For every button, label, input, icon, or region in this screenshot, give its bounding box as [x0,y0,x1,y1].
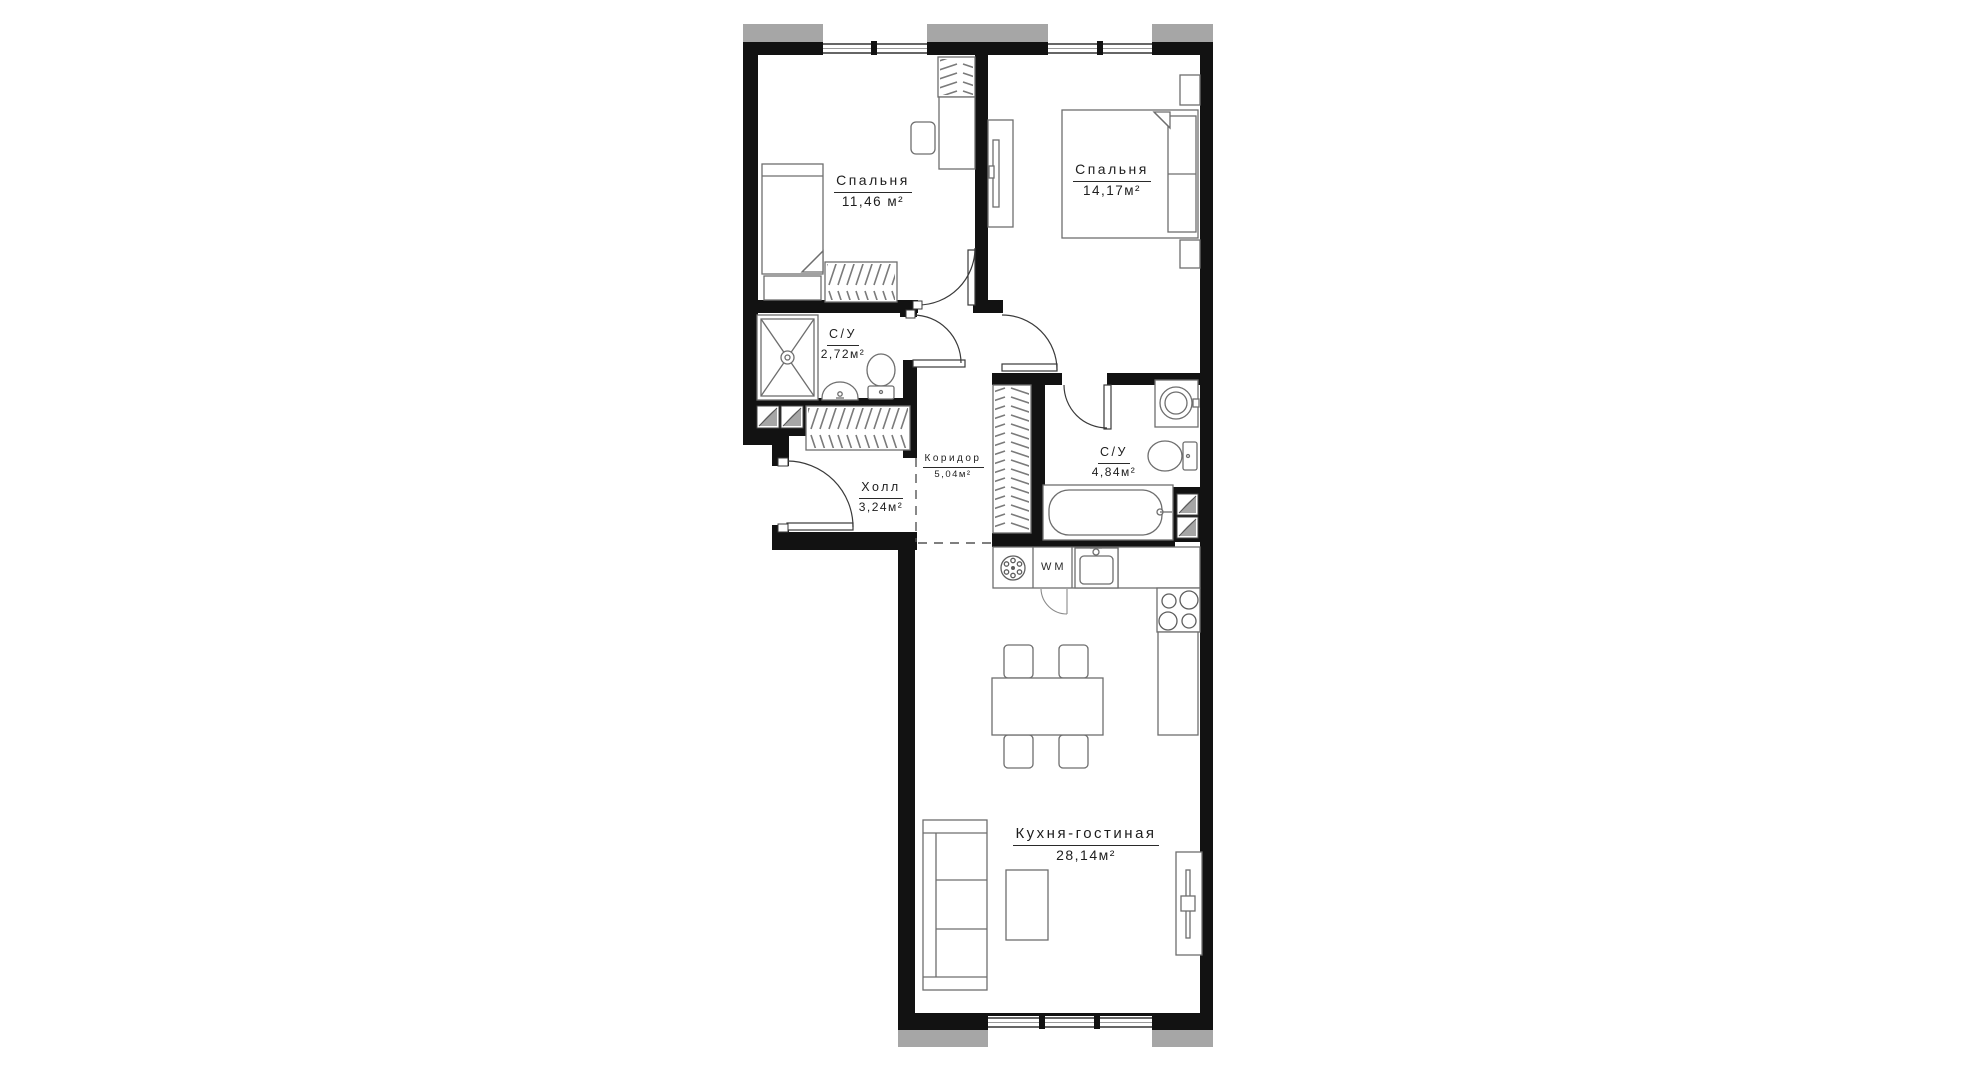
floor-plan-canvas: Спальня 11,46 м² Спальня 14,17м² С/У 2,7… [0,0,1980,1080]
washing-machine-label: WM [1041,561,1067,573]
bedroom1-door [913,248,975,309]
room-name: Кухня-гостиная [1013,823,1158,846]
bathroom2-door [1064,385,1111,429]
room-name: Спальня [1073,160,1151,182]
bathroom2-washer-symbol [1155,380,1199,427]
bedroom2-door [1002,315,1057,371]
room-name: Спальня [834,171,912,193]
room-name: Холл [859,479,902,499]
room-label-corridor: Коридор 5,04м² [920,452,986,481]
room-area: 5,04м² [934,468,971,481]
room-label-bathroom-2: С/У 4,84м² [1084,444,1144,480]
bedroom1-bed-symbol [762,164,823,300]
bedroom1-desk-symbol [911,97,975,169]
bathroom1-door [906,310,965,367]
room-label-hall: Холл 3,24м² [847,479,915,515]
bathroom2-toilet-symbol [1148,441,1197,471]
appliance-door-swing [1041,589,1067,614]
sofa-symbol [923,820,987,990]
shower-symbol [757,315,818,400]
corridor-closet-symbol [993,385,1031,533]
room-label-bedroom-2: Спальня 14,17м² [1057,160,1167,200]
bedroom1-wardrobe-symbol [825,262,897,302]
room-area: 3,24м² [859,499,904,516]
dining-table-symbol [992,645,1103,768]
kitchen-sink-symbol [1075,548,1118,588]
floor-plan-drawing [0,0,1980,1080]
room-name: С/У [827,326,859,346]
window-top-right [1048,41,1152,55]
room-area: 2,72м² [821,346,866,363]
bedroom2-tv-dresser-symbol [988,120,1013,227]
room-label-bathroom-1: С/У 2,72м² [813,326,873,362]
room-label-kitchen-living: Кухня-гостиная 28,14м² [1006,823,1166,866]
room-area: 4,84м² [1092,464,1137,481]
hall-wardrobe-symbol [806,406,910,450]
room-area: 28,14м² [1056,846,1116,866]
living-tv-unit-symbol [1176,852,1202,955]
bedroom1-closet-symbol [938,57,975,97]
bathtub-symbol [1043,485,1173,540]
room-name: С/У [1098,444,1130,464]
window-top-left [823,41,927,55]
room-label-bedroom-1: Спальня 11,46 м² [818,171,928,211]
bathroom1-sink-symbol [822,382,858,400]
coffee-table-symbol [1006,870,1048,940]
room-area: 11,46 м² [842,193,904,212]
room-name: Коридор [923,452,984,468]
window-bottom [988,1015,1152,1030]
entrance-door [778,458,853,532]
room-area: 14,17м² [1083,182,1141,201]
